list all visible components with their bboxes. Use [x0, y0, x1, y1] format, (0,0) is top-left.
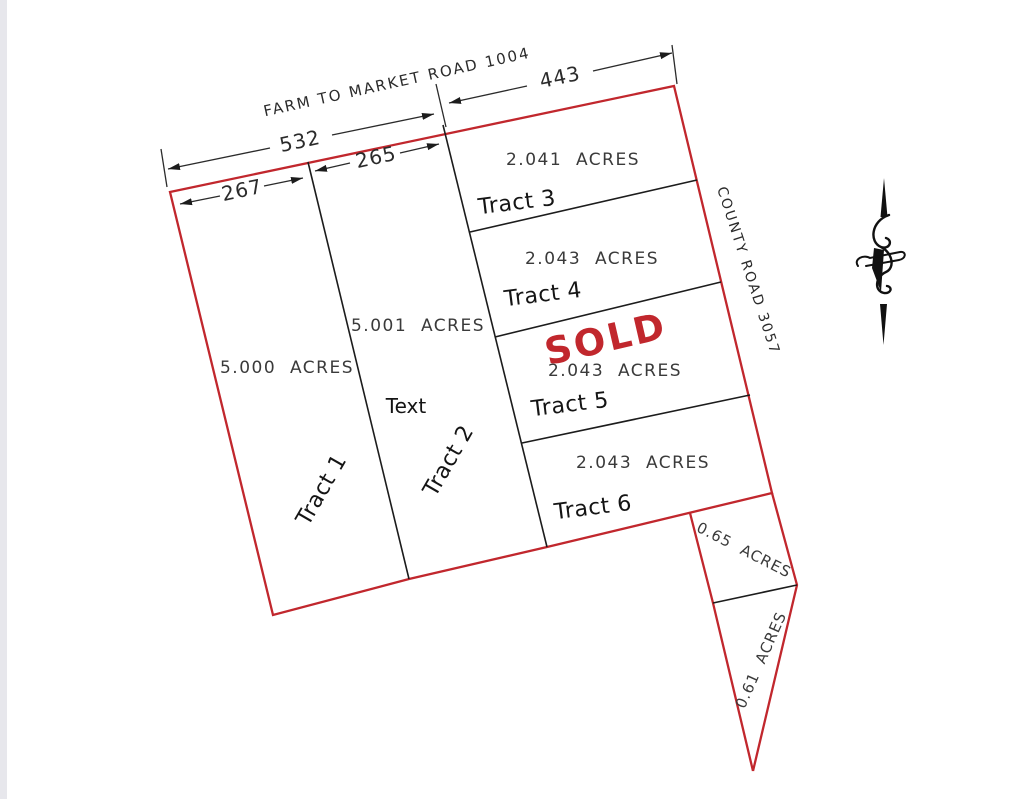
dim-label-443: 443 [537, 61, 582, 93]
tract1-name-label: Tract 1 [291, 450, 352, 531]
county-road-label: COUNTY ROAD 3057 [713, 185, 783, 357]
survey-plat-page: 532 443 267 265 FARM TO MARKET ROAD 1004… [0, 0, 1024, 799]
tract4-name-label: Tract 4 [502, 278, 583, 312]
dim-265-left-arrow [315, 163, 350, 171]
dim-532-right-arrow [332, 114, 434, 135]
farm-to-market-road-label: FARM TO MARKET ROAD 1004 [262, 44, 532, 121]
dim-label-532: 532 [277, 125, 322, 157]
extension-tick-left [161, 149, 167, 187]
divider-flag-lots [713, 585, 797, 603]
main-parcel-outline [170, 86, 772, 615]
tract6-acres-label: 2.043 ACRES [576, 453, 710, 473]
dim-443-right-arrow [593, 53, 672, 71]
tract6-name-label: Tract 6 [552, 491, 633, 525]
flaglot-065-acres-label: 0.65 ACRES [694, 518, 795, 581]
north-arrow-icon [857, 178, 905, 345]
dim-267-left-arrow [180, 196, 220, 204]
plat-drawing: 532 443 267 265 FARM TO MARKET ROAD 1004… [0, 0, 1024, 799]
dim-532-left-arrow [168, 148, 270, 169]
flaglot-061-acres-label: 0.61 ACRES [732, 609, 791, 711]
dim-267-right-arrow [264, 178, 303, 186]
tract2-name-label: Tract 2 [418, 421, 479, 502]
tract2-text-note: Text [385, 394, 427, 418]
dim-label-267: 267 [219, 174, 264, 206]
north-arrow-top-spike [881, 178, 888, 217]
tract3-acres-label: 2.041 ACRES [506, 150, 640, 170]
dim-265-right-arrow [400, 144, 439, 153]
extension-tick-right [672, 45, 677, 84]
parcel-boundary [170, 86, 797, 771]
tract5-name-label: Tract 5 [529, 388, 610, 422]
tract1-acres-label: 5.000 ACRES [220, 358, 354, 378]
north-arrow-bottom-spike [880, 304, 887, 345]
dim-443-left-arrow [449, 86, 527, 103]
tract4-acres-label: 2.043 ACRES [525, 249, 659, 269]
tract5-acres-label: 2.043 ACRES [548, 361, 682, 381]
tract2-acres-label: 5.001 ACRES [351, 316, 485, 336]
dim-label-265: 265 [353, 141, 398, 173]
extension-tick-middle [436, 84, 446, 127]
